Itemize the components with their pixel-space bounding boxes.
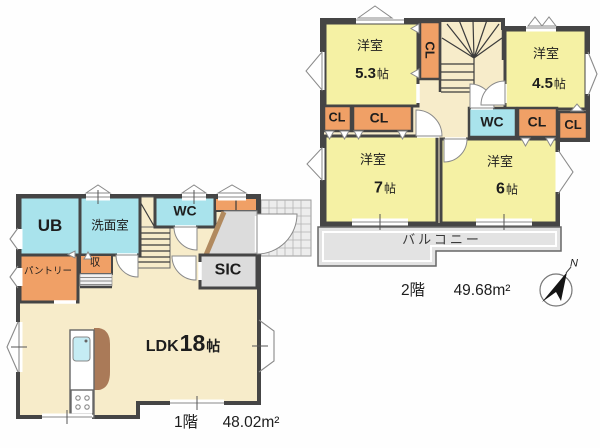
room-label-closet-1f: 収 <box>90 258 101 269</box>
size-7: 7 <box>374 181 383 197</box>
room-bedroom-4-5 <box>505 30 586 109</box>
ldk-unit: 帖 <box>206 339 220 353</box>
room-label-bedroom-6-size: 6帖 <box>496 182 518 198</box>
kitchen-sink-icon <box>73 337 90 361</box>
floor1-label: 1階 <box>174 415 198 431</box>
unit-5-3: 帖 <box>377 68 389 80</box>
room-label-washroom: 洗面室 <box>91 220 129 233</box>
floorplan-image: UB 洗面室 WC パントリー 収 SIC LDK18帖 1階 48.02m² … <box>0 0 600 448</box>
room-label-bedroom-4-5-size: 4.5帖 <box>532 76 566 91</box>
ldk-size: 18 <box>180 332 206 355</box>
size-5-3: 5.3 <box>355 66 376 81</box>
room-label-wc-2f: WC <box>480 115 503 129</box>
room-label-ub: UB <box>38 217 63 234</box>
unit-7: 帖 <box>384 183 396 195</box>
room-label-sic: SIC <box>215 263 242 279</box>
room-label-pantry: パントリー <box>24 267 72 277</box>
size-6: 6 <box>496 182 505 198</box>
room-label-ldk: LDK18帖 <box>146 332 220 355</box>
closet-label-left-a: CL <box>329 112 346 125</box>
floorplan-drawing <box>0 0 600 448</box>
unit-6: 帖 <box>506 184 518 196</box>
room-label-bedroom-4-5-name: 洋室 <box>533 47 559 60</box>
size-4-5: 4.5 <box>532 76 553 91</box>
room-label-bedroom-7-name: 洋室 <box>360 153 386 166</box>
closet-label-right-b: CL <box>564 118 581 131</box>
closet-label-right-a: CL <box>528 115 547 129</box>
room-label-bedroom-7-size: 7帖 <box>374 181 396 197</box>
floor2-area: 49.68m² <box>454 283 511 299</box>
room-pantry <box>20 255 78 302</box>
room-label-wc-1f: WC <box>173 204 196 218</box>
room-label-bedroom-6-name: 洋室 <box>487 155 513 168</box>
room-label-bedroom-5-3-size: 5.3帖 <box>355 66 389 81</box>
closet-label-stairs: CL <box>424 41 437 58</box>
unit-4-5: 帖 <box>554 78 566 90</box>
stove-icon <box>71 390 93 414</box>
ldk-text: LDK <box>146 339 179 355</box>
floor2-plan <box>306 6 597 266</box>
balcony-label: バルコニー <box>402 233 482 246</box>
floor2-label: 2階 <box>401 283 425 299</box>
room-label-bedroom-5-3-name: 洋室 <box>357 39 383 52</box>
closet-label-left-b: CL <box>370 111 389 125</box>
floor1-area: 48.02m² <box>223 415 280 431</box>
compass-north-label: N <box>570 258 578 269</box>
compass-icon <box>540 267 572 306</box>
